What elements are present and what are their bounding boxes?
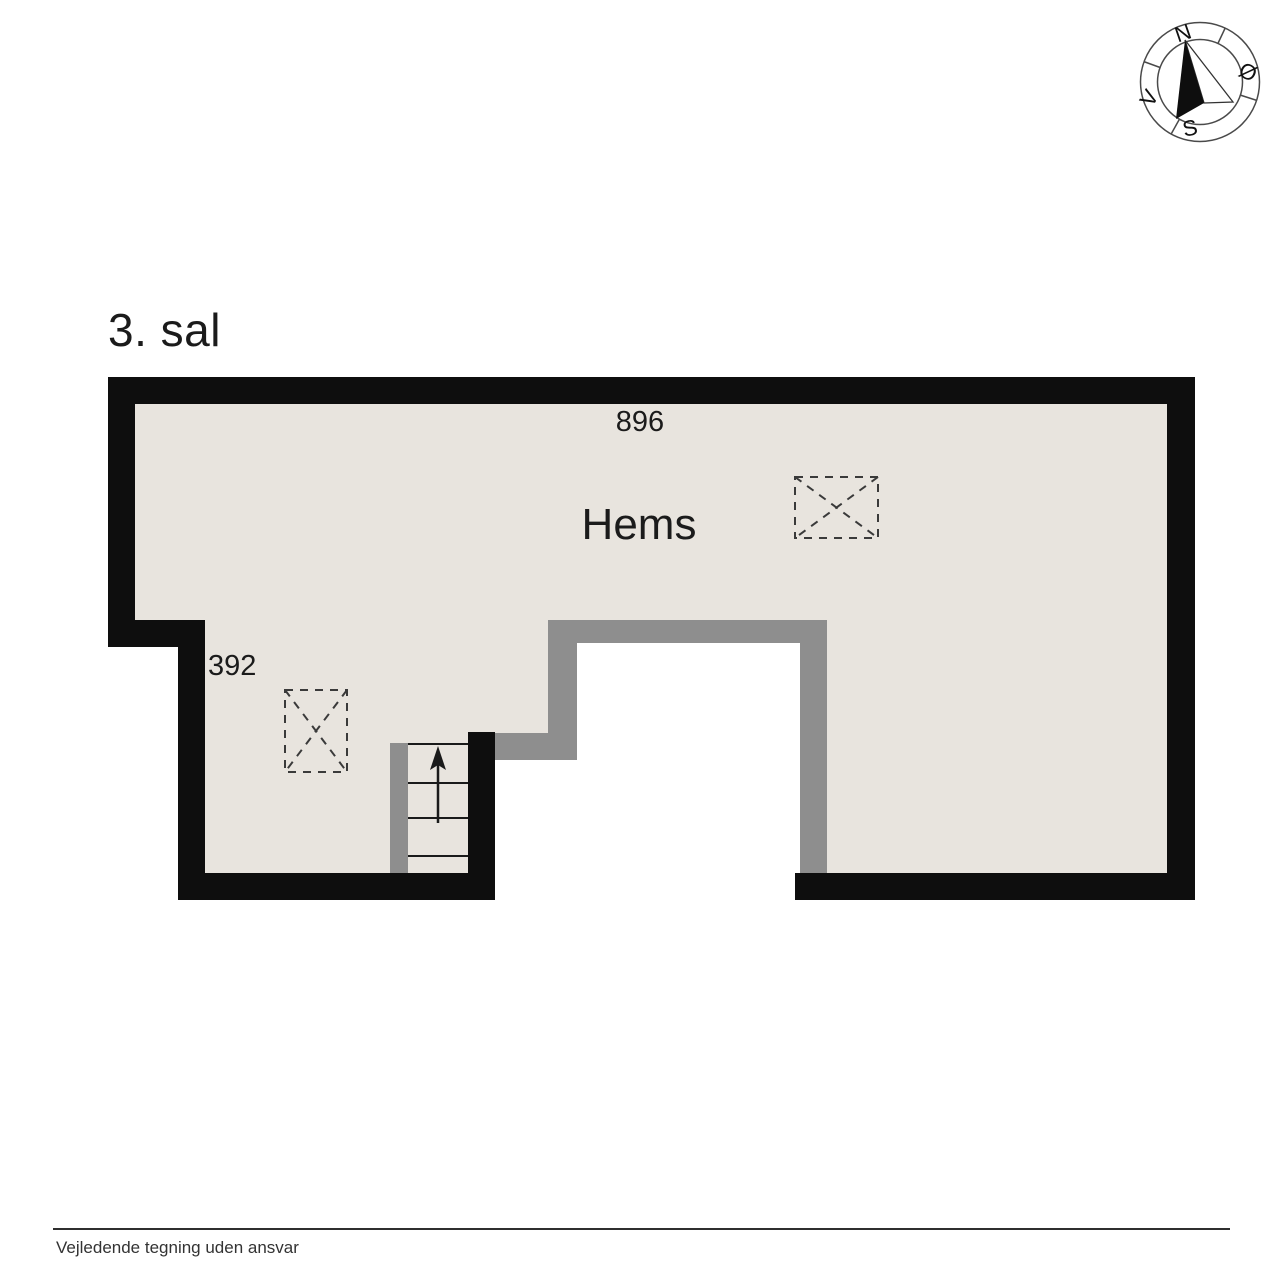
stair-up-arrow-icon (425, 742, 451, 827)
stair-void-left (495, 760, 577, 900)
dimension-left: 392 (208, 650, 256, 683)
stair-void (577, 643, 800, 900)
railing-lower-left (495, 733, 577, 760)
railing-right (800, 643, 827, 873)
wall-bottom-right (795, 873, 1195, 900)
floor-area-lower-right (800, 620, 1167, 873)
footer-divider (53, 1228, 1230, 1230)
wall-stair-right (468, 732, 495, 900)
railing-top (548, 620, 827, 643)
wall-right (1167, 377, 1195, 900)
dimension-top: 896 (540, 406, 740, 439)
stair-tread-line (408, 855, 468, 857)
skylight-icon (793, 475, 880, 540)
stair-railing (390, 743, 408, 873)
footer-disclaimer: Vejledende tegning uden ansvar (56, 1238, 299, 1258)
skylight-icon (283, 688, 349, 774)
wall-left-lower (178, 620, 205, 900)
wall-left-upper (108, 377, 135, 647)
compass-rose-icon: N Ø S V (1133, 15, 1267, 149)
floorplan-page: 3. sal (0, 0, 1280, 1280)
wall-bottom-left (178, 873, 495, 900)
wall-top (108, 377, 1195, 404)
room-label: Hems (539, 500, 739, 550)
floor-title: 3. sal (108, 303, 221, 357)
